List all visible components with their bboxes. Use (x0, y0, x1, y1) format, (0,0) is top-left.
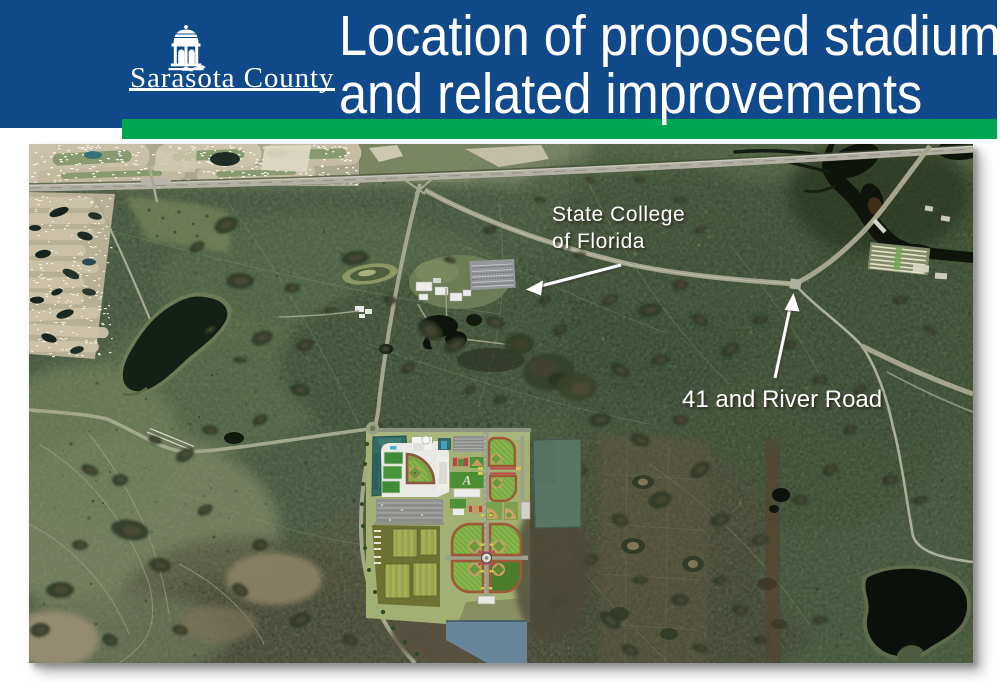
svg-text:A: A (462, 473, 472, 488)
